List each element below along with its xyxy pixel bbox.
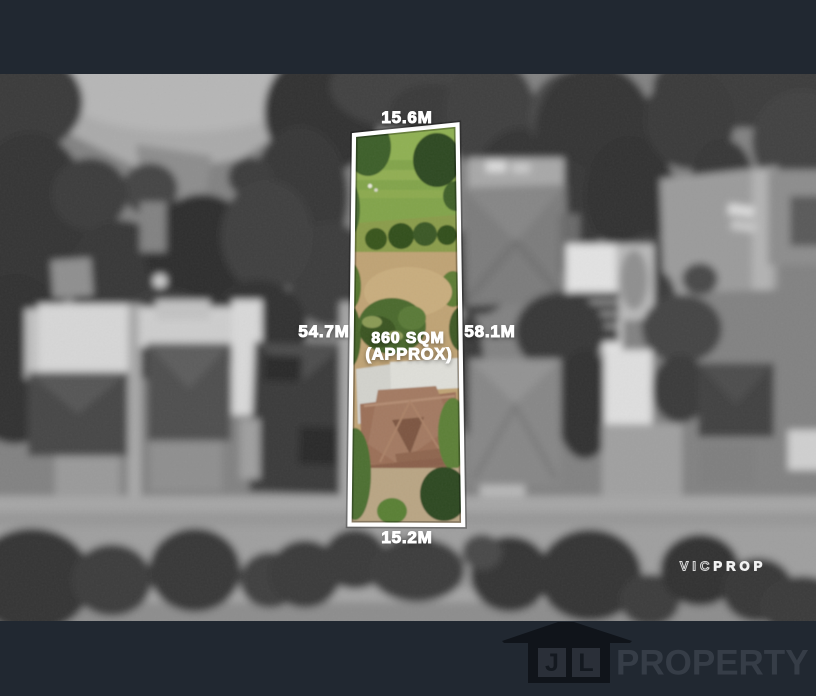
svg-text:L: L [578,649,593,677]
svg-text:PROPERTY: PROPERTY [616,644,809,683]
svg-text:J: J [545,649,559,677]
